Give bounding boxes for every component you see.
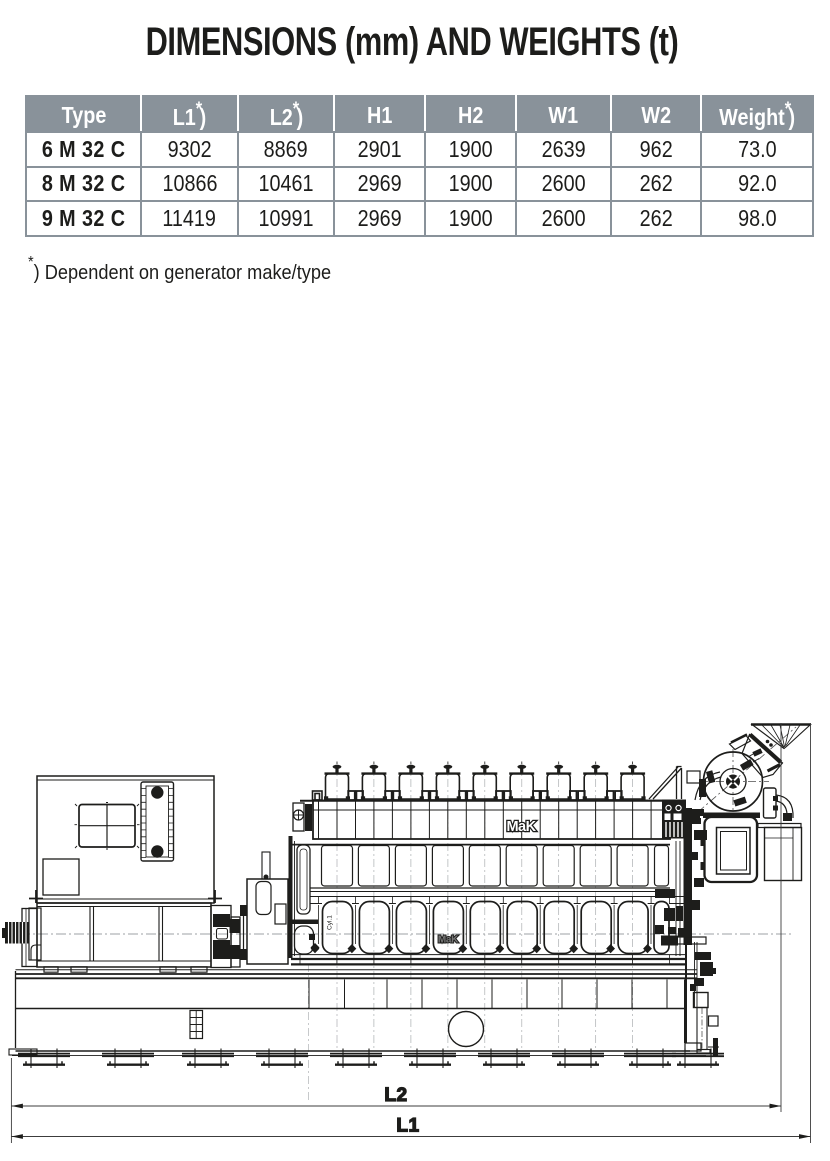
svg-text:Cyl.1: Cyl.1 bbox=[327, 915, 334, 930]
svg-text:L2: L2 bbox=[384, 1085, 407, 1106]
svg-text:MaK: MaK bbox=[438, 935, 459, 946]
svg-text:MaK: MaK bbox=[506, 819, 536, 835]
svg-text:L1: L1 bbox=[396, 1116, 419, 1137]
